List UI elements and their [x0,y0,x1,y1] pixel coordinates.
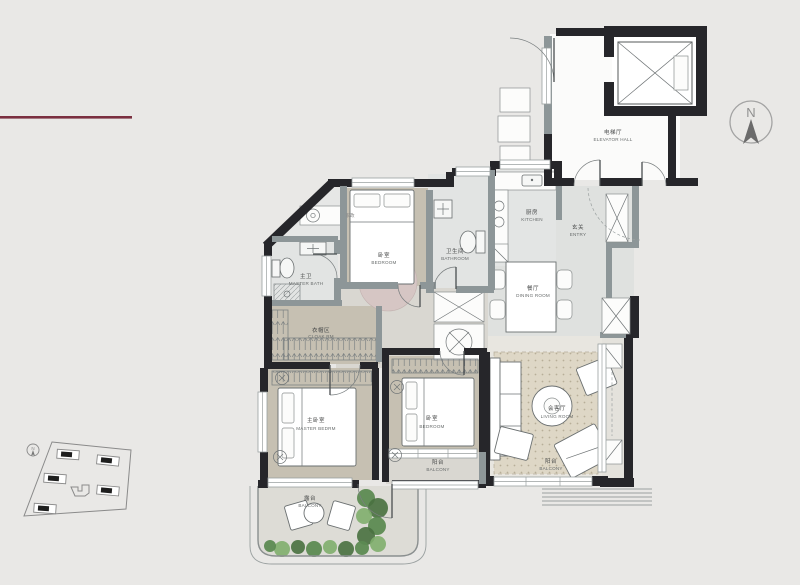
svg-text:BEDROOM: BEDROOM [371,260,396,265]
svg-text:ENTRY: ENTRY [570,232,587,237]
svg-text:BALCONY: BALCONY [298,503,321,508]
site-building [57,449,80,460]
svg-text:MASTER BATH: MASTER BATH [289,281,324,286]
svg-text:会客厅: 会客厅 [548,404,566,412]
svg-text:衣帽区: 衣帽区 [312,326,330,334]
site-building [97,455,120,466]
svg-text:MASTER BEDRM: MASTER BEDRM [296,426,335,431]
svg-text:卧室: 卧室 [378,251,390,259]
svg-text:ELEVATOR HALL: ELEVATOR HALL [593,137,632,142]
label-housekeeping: 家政 [346,212,355,219]
svg-text:BALCONY: BALCONY [426,467,449,472]
svg-text:露台: 露台 [304,494,316,502]
svg-text:卫生间: 卫生间 [446,247,464,255]
bed-top-bedroom [350,190,414,284]
exterior-ac-niches [498,88,530,168]
floor-plan-canvas: 电梯厅 ELEVATOR HALL 厨房 KITCHEN 玄关 ENTRY 餐厅… [0,0,800,585]
site-building [44,473,67,484]
svg-text:DINING ROOM: DINING ROOM [516,293,550,298]
svg-text:CLOAK RM: CLOAK RM [308,334,334,339]
svg-text:KITCHEN: KITCHEN [521,217,543,222]
label-entry: 玄关 ENTRY [570,223,587,237]
svg-text:阳台: 阳台 [432,458,444,466]
svg-text:BATHROOM: BATHROOM [441,256,469,261]
accent-line [0,116,132,119]
bed-bedroom-2 [402,378,474,446]
label-cloak-room: 衣帽区 CLOAK RM [308,326,334,339]
svg-text:厨房: 厨房 [526,208,538,216]
svg-text:电梯厅: 电梯厅 [604,128,622,136]
svg-text:主卧室: 主卧室 [307,416,325,424]
svg-text:BALCONY: BALCONY [539,466,562,471]
elevator-shaft [618,42,692,104]
svg-text:主卫: 主卫 [300,272,312,280]
svg-text:LIVING ROOM: LIVING ROOM [541,414,574,419]
svg-text:BEDROOM: BEDROOM [419,424,444,429]
svg-text:阳台: 阳台 [545,457,557,465]
north-label: N [746,105,755,120]
svg-text:家政: 家政 [346,212,355,219]
svg-text:玄关: 玄关 [572,223,584,231]
svg-text:卧室: 卧室 [426,414,438,422]
svg-text:餐厅: 餐厅 [527,284,539,292]
floor-plan-page: 电梯厅 ELEVATOR HALL 厨房 KITCHEN 玄关 ENTRY 餐厅… [0,0,800,585]
site-building [97,485,120,496]
site-building [34,503,57,514]
